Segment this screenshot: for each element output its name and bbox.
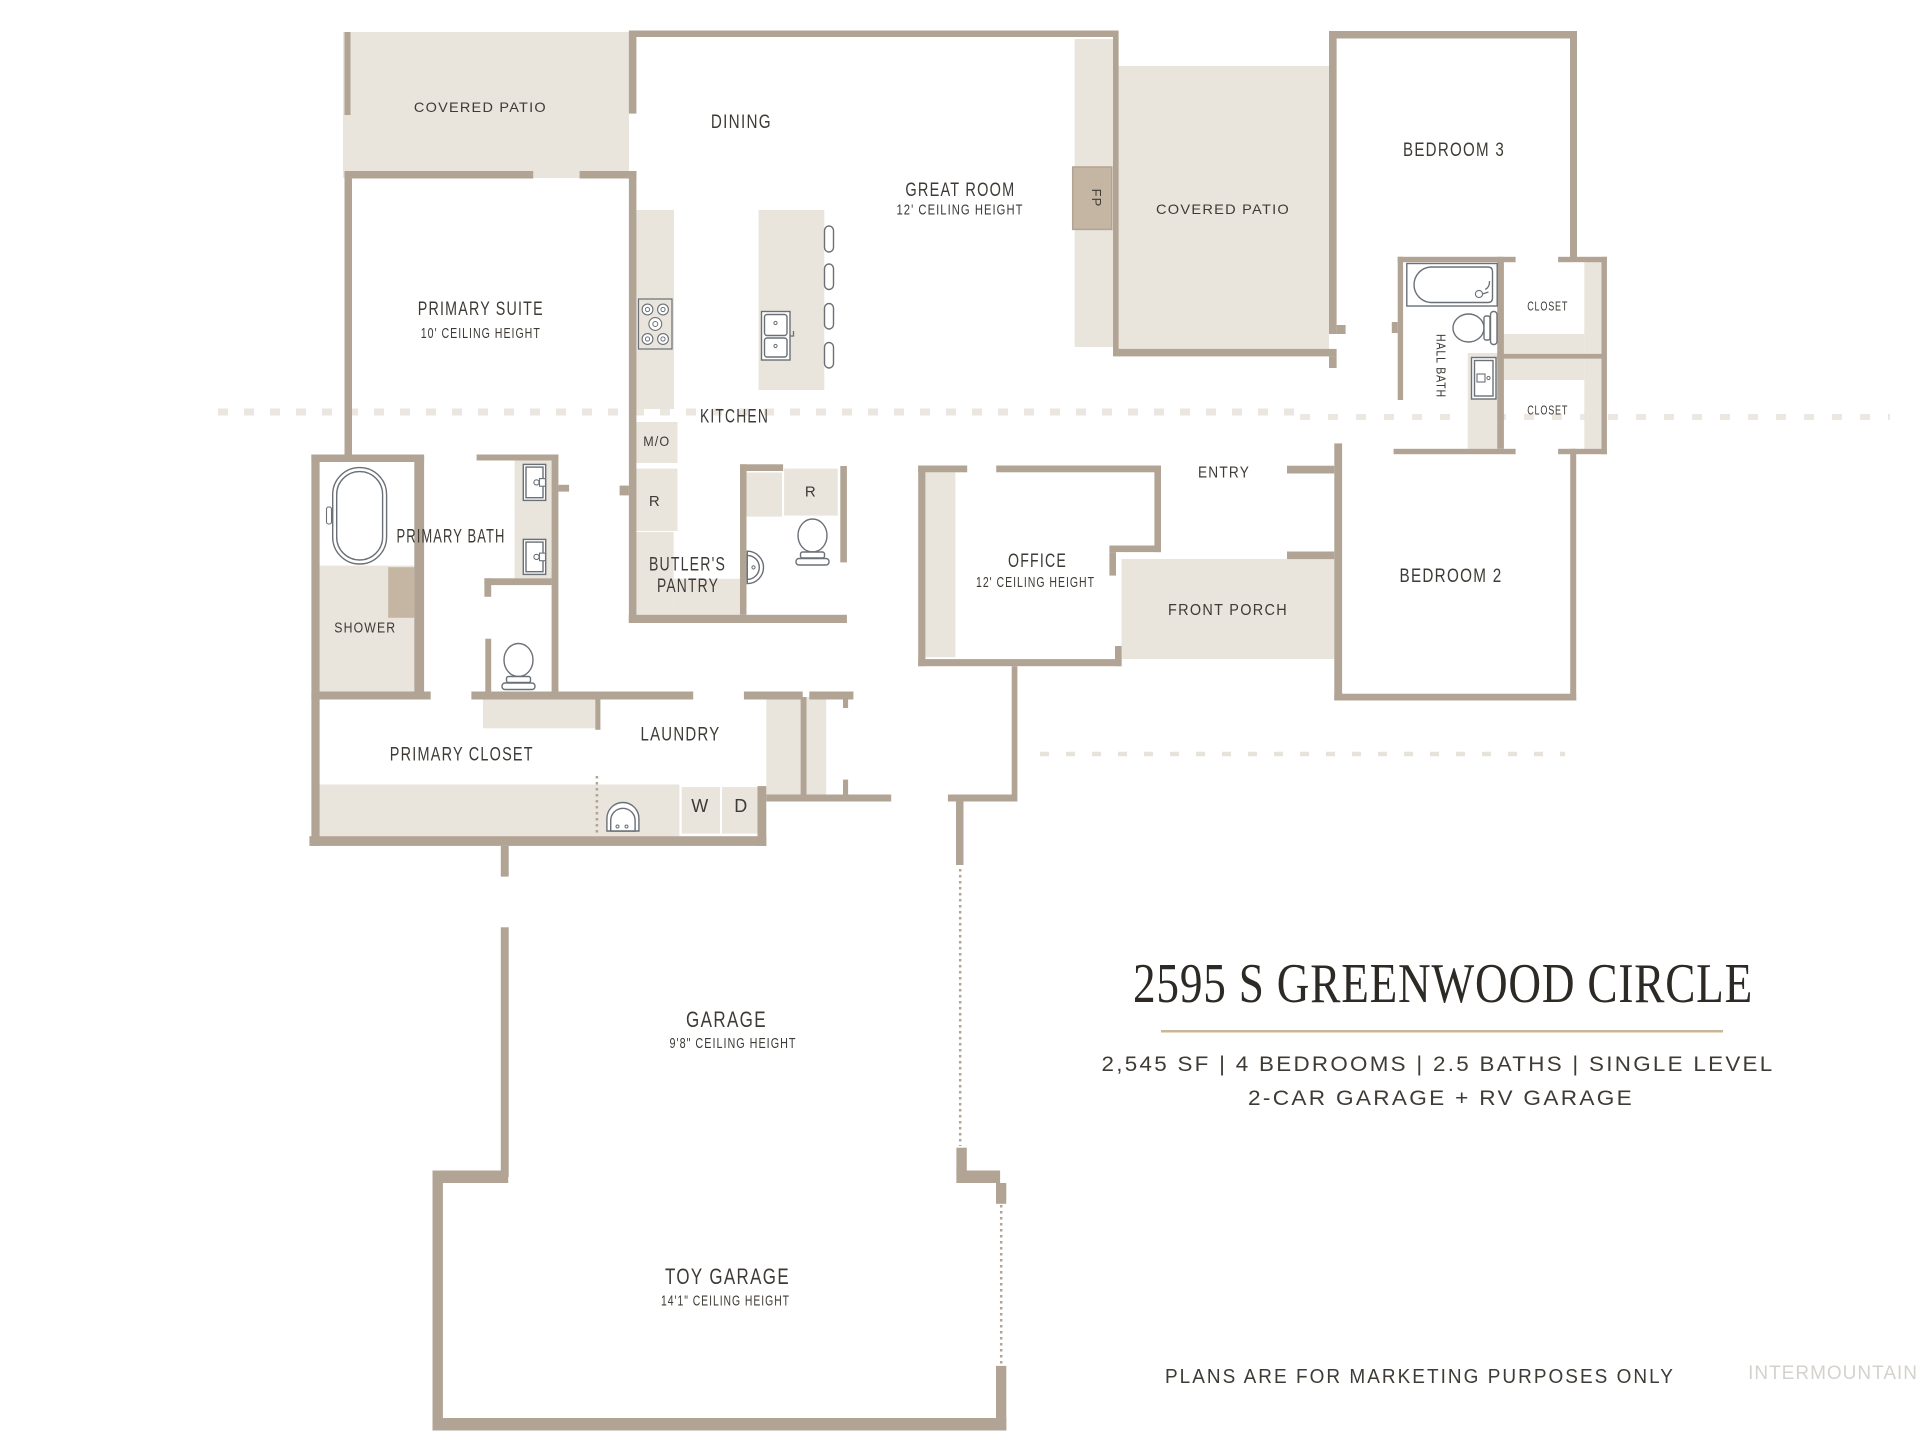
svg-text:FRONT PORCH: FRONT PORCH	[1168, 602, 1288, 619]
svg-text:2-CAR GARAGE + RV GARAGE: 2-CAR GARAGE + RV GARAGE	[1248, 1086, 1634, 1110]
svg-text:OFFICE: OFFICE	[1008, 551, 1067, 572]
svg-text:GARAGE: GARAGE	[686, 1007, 767, 1032]
svg-text:COVERED PATIO: COVERED PATIO	[414, 99, 547, 115]
svg-text:2595 S GREENWOOD CIRCLE: 2595 S GREENWOOD CIRCLE	[1133, 953, 1753, 1015]
svg-text:GREAT ROOM: GREAT ROOM	[905, 180, 1015, 201]
svg-text:R: R	[649, 493, 661, 510]
svg-text:BEDROOM 2: BEDROOM 2	[1400, 566, 1503, 587]
svg-text:ENTRY: ENTRY	[1198, 465, 1250, 482]
svg-text:CLOSET: CLOSET	[1527, 300, 1568, 314]
svg-text:LAUNDRY: LAUNDRY	[641, 725, 721, 746]
svg-text:12' CEILING HEIGHT: 12' CEILING HEIGHT	[897, 202, 1024, 219]
svg-text:INTERMOUNTAIN: INTERMOUNTAIN	[1748, 1363, 1918, 1384]
svg-text:2,545 SF | 4 BEDROOMS | 2.5 BA: 2,545 SF | 4 BEDROOMS | 2.5 BATHS | SING…	[1102, 1052, 1775, 1076]
svg-text:W: W	[691, 796, 709, 816]
svg-text:PANTRY: PANTRY	[657, 576, 719, 597]
svg-text:KITCHEN: KITCHEN	[700, 407, 769, 428]
svg-text:SHOWER: SHOWER	[334, 620, 396, 637]
svg-text:TOY GARAGE: TOY GARAGE	[665, 1264, 790, 1289]
svg-text:BUTLER'S: BUTLER'S	[649, 555, 726, 576]
svg-text:PRIMARY CLOSET: PRIMARY CLOSET	[390, 745, 534, 766]
svg-text:PLANS ARE FOR MARKETING PURPOS: PLANS ARE FOR MARKETING PURPOSES ONLY	[1165, 1365, 1675, 1388]
svg-text:10' CEILING HEIGHT: 10' CEILING HEIGHT	[421, 325, 541, 342]
svg-text:M/O: M/O	[643, 433, 670, 449]
svg-text:DINING: DINING	[711, 112, 772, 133]
svg-text:R: R	[805, 484, 817, 501]
svg-text:CLOSET: CLOSET	[1527, 403, 1568, 417]
svg-text:COVERED PATIO: COVERED PATIO	[1156, 201, 1290, 217]
svg-text:9'8" CEILING HEIGHT: 9'8" CEILING HEIGHT	[670, 1035, 797, 1052]
svg-text:12' CEILING HEIGHT: 12' CEILING HEIGHT	[976, 574, 1095, 591]
svg-text:PRIMARY SUITE: PRIMARY SUITE	[418, 299, 544, 320]
svg-text:PRIMARY BATH: PRIMARY BATH	[397, 527, 506, 548]
svg-text:D: D	[734, 796, 748, 816]
svg-text:14'1" CEILING HEIGHT: 14'1" CEILING HEIGHT	[661, 1293, 790, 1310]
svg-text:BEDROOM 3: BEDROOM 3	[1403, 140, 1505, 161]
svg-text:FP: FP	[1089, 189, 1104, 208]
svg-text:HALL BATH: HALL BATH	[1434, 334, 1449, 398]
